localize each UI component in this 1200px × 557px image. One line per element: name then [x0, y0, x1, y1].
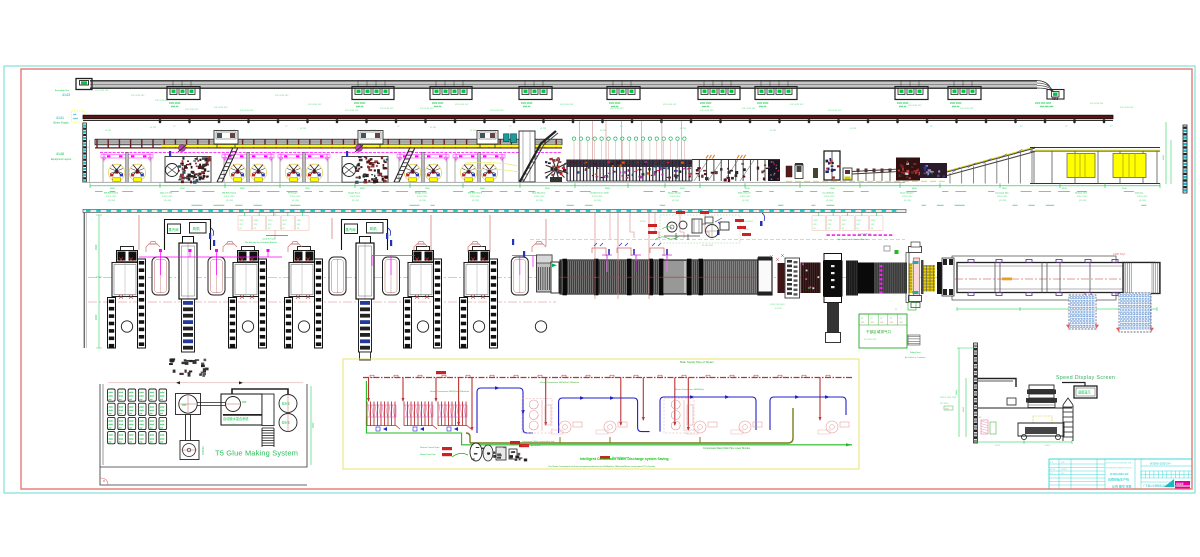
- svg-text:### #### ###: ### #### ###: [275, 95, 289, 97]
- svg-text:### ##: ### ##: [759, 106, 767, 109]
- svg-text:### #### ###: ### #### ###: [790, 104, 804, 106]
- svg-text:#### ####: #### ####: [740, 196, 751, 198]
- svg-text:#### ####: #### ####: [224, 196, 235, 198]
- svg-text:### #### ###: ### #### ###: [155, 100, 169, 102]
- svg-text:###: ###: [139, 405, 144, 409]
- svg-text:####: ####: [1176, 482, 1184, 486]
- svg-text:### #### ###: ### #### ###: [490, 110, 504, 112]
- svg-text:(# ###): (# ###): [826, 200, 833, 202]
- svg-text:###: ###: [139, 419, 144, 423]
- svg-text:#### ####: #### ####: [592, 196, 603, 198]
- svg-text:干部区域排气口: 干部区域排气口: [866, 329, 892, 334]
- svg-text:(# ###): (# ###): [419, 200, 426, 202]
- svg-text:(# ###): (# ###): [292, 200, 299, 202]
- svg-text:(# ###): (# ###): [108, 200, 115, 202]
- svg-text:蒸汽间: 蒸汽间: [169, 227, 179, 232]
- svg-text:###: ###: [119, 419, 124, 423]
- svg-text:###: ###: [109, 391, 114, 395]
- svg-text:Double Facer 2200: Double Facer 2200: [590, 192, 609, 195]
- svg-text:4143: 4143: [62, 93, 70, 97]
- svg-text:Slitter Scorer: Slitter Scorer: [738, 192, 751, 195]
- svg-text:### #### ###: ### #### ###: [742, 108, 756, 110]
- svg-text:### ### ###: ### ### ###: [1040, 106, 1054, 109]
- svg-text:### #### ###: ### #### ###: [700, 110, 714, 112]
- svg-text:Conveyor Sys: Conveyor Sys: [995, 192, 1010, 195]
- svg-text:#### ####: #### ####: [997, 196, 1008, 198]
- svg-text:(# ###): (# ###): [472, 200, 479, 202]
- svg-text:#### ####: #### ####: [417, 196, 428, 198]
- svg-text:Mill Roll Stand: Mill Roll Stand: [104, 192, 119, 195]
- svg-text:### #### ###: ### #### ###: [864, 339, 877, 341]
- svg-text:#### # #### ####: #### # #### ####: [940, 397, 957, 399]
- svg-text:Down Stacker: Down Stacker: [900, 192, 914, 195]
- svg-text:###: ###: [160, 419, 165, 423]
- svg-text:### #### ###: ### #### ###: [308, 104, 322, 106]
- svg-text:## ###: ## ###: [850, 128, 857, 130]
- svg-text:### ####: ### ####: [940, 403, 949, 405]
- svg-text:### ##: ### ##: [702, 106, 710, 109]
- svg-text:####: ####: [312, 422, 315, 428]
- svg-text:蒸汽间: 蒸汽间: [346, 227, 356, 232]
- svg-text:###: ###: [109, 405, 114, 409]
- svg-text:### #### ###: ### #### ###: [240, 110, 254, 112]
- svg-text:#### ### ####: #### ### ####: [770, 304, 785, 306]
- svg-text:###: ###: [129, 391, 134, 395]
- svg-text:####: ####: [963, 406, 965, 412]
- svg-text:###: ###: [129, 433, 134, 437]
- svg-text:#####: #####: [640, 221, 646, 223]
- svg-text:Equipment Layout: Equipment Layout: [51, 158, 71, 161]
- svg-text:(# ###): (# ###): [904, 200, 911, 202]
- svg-text:### ##: ### ##: [523, 106, 531, 109]
- svg-text:Intelligent Condensate Water D: Intelligent Condensate Water Discharge s…: [580, 457, 669, 461]
- svg-text:Single Facer: Single Facer: [348, 192, 361, 195]
- svg-text:Main Supply Pipe of Steam: Main Supply Pipe of Steam: [680, 360, 714, 364]
- svg-text:This Steam Consumption of whol: This Steam Consumption of whole corrugat…: [548, 465, 655, 468]
- svg-text:Mill Roll Stand: Mill Roll Stand: [468, 192, 483, 195]
- svg-text:## ###: ## ###: [470, 130, 477, 132]
- svg-text:### #### ###: ### #### ###: [663, 104, 677, 106]
- svg-text:Condensate Water recovered to: Condensate Water recovered to tank: [522, 440, 555, 443]
- svg-text:4141: 4141: [56, 116, 64, 120]
- svg-text:#### ####: #### ####: [1077, 196, 1088, 198]
- svg-text:Mill Roll Stand: Mill Roll Stand: [222, 192, 237, 195]
- svg-text:### #### ###: ### #### ###: [908, 105, 922, 107]
- svg-text:###: ###: [242, 400, 247, 404]
- svg-text:### #### ###: ### #### ###: [560, 104, 574, 106]
- svg-text:#### ####: #### ####: [162, 196, 173, 198]
- svg-text:#### ####: #### ####: [106, 196, 117, 198]
- svg-text:(# ###): (# ###): [1079, 200, 1086, 202]
- svg-text:### #### ###: ### #### ###: [1120, 107, 1134, 109]
- svg-text:By Carton or Customer Electric: By Carton or Customer Electric: [838, 238, 869, 241]
- svg-text:######### ######## #####: ######### ######## #####: [1106, 468, 1132, 470]
- svg-text:风机: 风机: [370, 226, 378, 231]
- svg-text:###: ###: [150, 433, 155, 437]
- svg-text:### #### ###: ### #### ###: [131, 95, 145, 97]
- svg-text:###: ###: [150, 391, 155, 395]
- svg-text:#### ####: #### ####: [1137, 196, 1148, 198]
- svg-text:Steam Supply: Steam Supply: [53, 122, 69, 125]
- svg-text:(# ###): (# ###): [352, 200, 359, 202]
- svg-text:### #### ###: ### #### ###: [828, 110, 842, 112]
- svg-text:Speed Display Screen: Speed Display Screen: [1056, 375, 1115, 381]
- svg-text:## ###: ## ###: [150, 127, 157, 129]
- svg-text:###: ###: [119, 391, 124, 395]
- svg-text:## ###: ## ###: [105, 130, 112, 132]
- svg-text:Rotary Shear: Rotary Shear: [668, 192, 681, 195]
- svg-text:######: ######: [201, 446, 205, 455]
- svg-text:Steam Connection 4000/(Dia) 18: Steam Connection 4000/(Dia) 180m/min: [540, 381, 580, 384]
- svg-text:Steam Connection 4000/(Dia) 18: Steam Connection 4000/(Dia) 180m/min: [430, 390, 470, 393]
- svg-text:## ##: ## ##: [1050, 469, 1056, 471]
- svg-text:WJ200+2200-2-H: WJ200+2200-2-H: [1150, 462, 1171, 466]
- svg-text:Preheater: Preheater: [288, 192, 298, 195]
- svg-text:###: ###: [139, 433, 144, 437]
- svg-text:###: ###: [150, 419, 155, 423]
- svg-text:###: ###: [129, 405, 134, 409]
- svg-text:T5 Glue Making System: T5 Glue Making System: [215, 449, 298, 458]
- svg-text:Remote Control Valve: Remote Control Valve: [420, 446, 440, 449]
- svg-text:Steam Drain Pipe: Steam Drain Pipe: [420, 453, 437, 456]
- svg-text:(# ###): (# ###): [164, 200, 171, 202]
- svg-text:###: ###: [73, 117, 78, 121]
- svg-text:### #### ###: ### #### ###: [185, 109, 199, 111]
- svg-text:#### ####: #### ####: [824, 196, 835, 198]
- svg-text:Control Panel: Control Panel: [262, 237, 276, 240]
- svg-text:### #### ###: ### #### ###: [95, 90, 109, 92]
- svg-text:##### #### ######### ###: ##### #### ######### ###: [1106, 463, 1132, 465]
- svg-text:Assembly Unit:: Assembly Unit:: [55, 89, 70, 92]
- svg-text:####: ####: [1045, 445, 1051, 447]
- svg-text:###: ###: [160, 433, 165, 437]
- svg-text:(# ###): (# ###): [226, 200, 233, 202]
- svg-text:By Carton or Customer: By Carton or Customer: [905, 356, 926, 359]
- svg-text:自动胶水混合系统: 自动胶水混合系统: [223, 416, 249, 421]
- svg-text:#### ####: #### ####: [902, 196, 913, 198]
- svg-text:Recycle Pipe to tank: Recycle Pipe to tank: [522, 444, 540, 447]
- svg-text:###: ###: [119, 405, 124, 409]
- svg-text:## ### ####: ## ### ####: [702, 245, 714, 247]
- svg-text:Condensate Water Main Pipe Low: Condensate Water Main Pipe Lower Bracket: [703, 447, 750, 450]
- svg-text:########: ########: [744, 221, 754, 223]
- svg-text:风机: 风机: [193, 226, 201, 231]
- svg-text:## ###: ## ###: [770, 130, 777, 132]
- svg-text:Stacker Unit: Stacker Unit: [1075, 192, 1087, 195]
- svg-text:### ##: ### ##: [171, 106, 179, 109]
- svg-text:## ###: ## ###: [775, 308, 782, 310]
- svg-text:###: ###: [182, 403, 187, 407]
- svg-text:### #### ###: ### #### ###: [214, 107, 228, 109]
- svg-text:####: ####: [95, 314, 98, 320]
- svg-text:###: ###: [160, 391, 165, 395]
- svg-text:#### ####: #### ####: [670, 196, 681, 198]
- svg-text:####: ####: [956, 389, 958, 395]
- svg-text:(# ###): (# ###): [742, 200, 749, 202]
- svg-text:###: ###: [160, 405, 165, 409]
- svg-text:#####: #####: [1061, 469, 1067, 471]
- svg-text:###: ###: [109, 419, 114, 423]
- svg-text:Bridge Conv: Bridge Conv: [415, 192, 428, 195]
- svg-text:###: ###: [119, 433, 124, 437]
- svg-text:WJ200-2500-10#: WJ200-2500-10#: [1110, 473, 1129, 476]
- svg-text:Glue Machine: Glue Machine: [532, 193, 546, 195]
- svg-text:### #### ###: ### #### ###: [1090, 103, 1104, 105]
- svg-text:#### ####: #### ####: [350, 196, 361, 198]
- svg-text:Cut-off Knife: Cut-off Knife: [822, 192, 835, 195]
- svg-text:(# ###): (# ###): [672, 200, 679, 202]
- svg-text:## ###: ## ###: [430, 127, 437, 129]
- svg-text:Delivery: Delivery: [1135, 192, 1144, 195]
- svg-text:(# ###): (# ###): [594, 200, 601, 202]
- svg-text:4148: 4148: [56, 152, 64, 156]
- svg-text:(# ###): (# ###): [536, 200, 543, 202]
- svg-text:(# ###): (# ###): [999, 200, 1006, 202]
- svg-text:胶水泵: 胶水泵: [282, 402, 290, 406]
- svg-text:### #### ###: ### #### ###: [610, 108, 624, 110]
- svg-text:速度显示: 速度显示: [1078, 390, 1091, 395]
- svg-text:### #### ###: ### #### ###: [345, 110, 359, 112]
- svg-text:###: ###: [150, 405, 155, 409]
- svg-text:####: ####: [1163, 154, 1165, 160]
- svg-text:Splicer 1700: Splicer 1700: [160, 192, 173, 195]
- svg-text:瓦楞纸板生产线: 瓦楞纸板生产线: [1108, 477, 1129, 482]
- svg-text:Steam Connection 4000/(Dia): Steam Connection 4000/(Dia): [675, 388, 704, 391]
- svg-text:Safety Door: Safety Door: [910, 351, 921, 354]
- svg-text:###: ###: [109, 433, 114, 437]
- svg-text:## ###: ## ###: [300, 128, 307, 130]
- svg-text:## ###: ## ###: [540, 128, 547, 130]
- svg-text:比例 图号 张数: 比例 图号 张数: [1112, 484, 1132, 489]
- svg-text:Not Backup for Condition Elect: Not Backup for Condition Electric: [245, 241, 278, 244]
- svg-text:####: ####: [95, 244, 98, 250]
- svg-text:### #### ###: ### #### ###: [960, 108, 974, 110]
- svg-text:#### ####: #### ####: [290, 196, 301, 198]
- svg-text:###: ###: [129, 419, 134, 423]
- svg-text:1400 T2/yr: 1400 T2/yr: [1113, 252, 1125, 256]
- svg-text:###: ###: [139, 391, 144, 395]
- svg-text:胶水泵: 胶水泵: [282, 421, 290, 425]
- svg-text:### ##: ### ##: [952, 106, 960, 109]
- svg-text:### #### ###: ### #### ###: [420, 108, 434, 110]
- svg-text:(# ###): (# ###): [1139, 200, 1146, 202]
- svg-text:#### ####: #### ####: [534, 196, 545, 198]
- svg-text:### #### ###: ### #### ###: [455, 104, 469, 106]
- svg-text:#### ####: #### ####: [470, 196, 481, 198]
- svg-text:### ##: ### ##: [899, 106, 907, 109]
- svg-text:## ###: ## ###: [680, 128, 687, 130]
- svg-text:####: ####: [995, 445, 1001, 447]
- svg-text:### ##: ### ##: [356, 106, 364, 109]
- svg-text:### #### ###: ### #### ###: [380, 108, 394, 110]
- svg-text:### ##: ### ##: [434, 106, 442, 109]
